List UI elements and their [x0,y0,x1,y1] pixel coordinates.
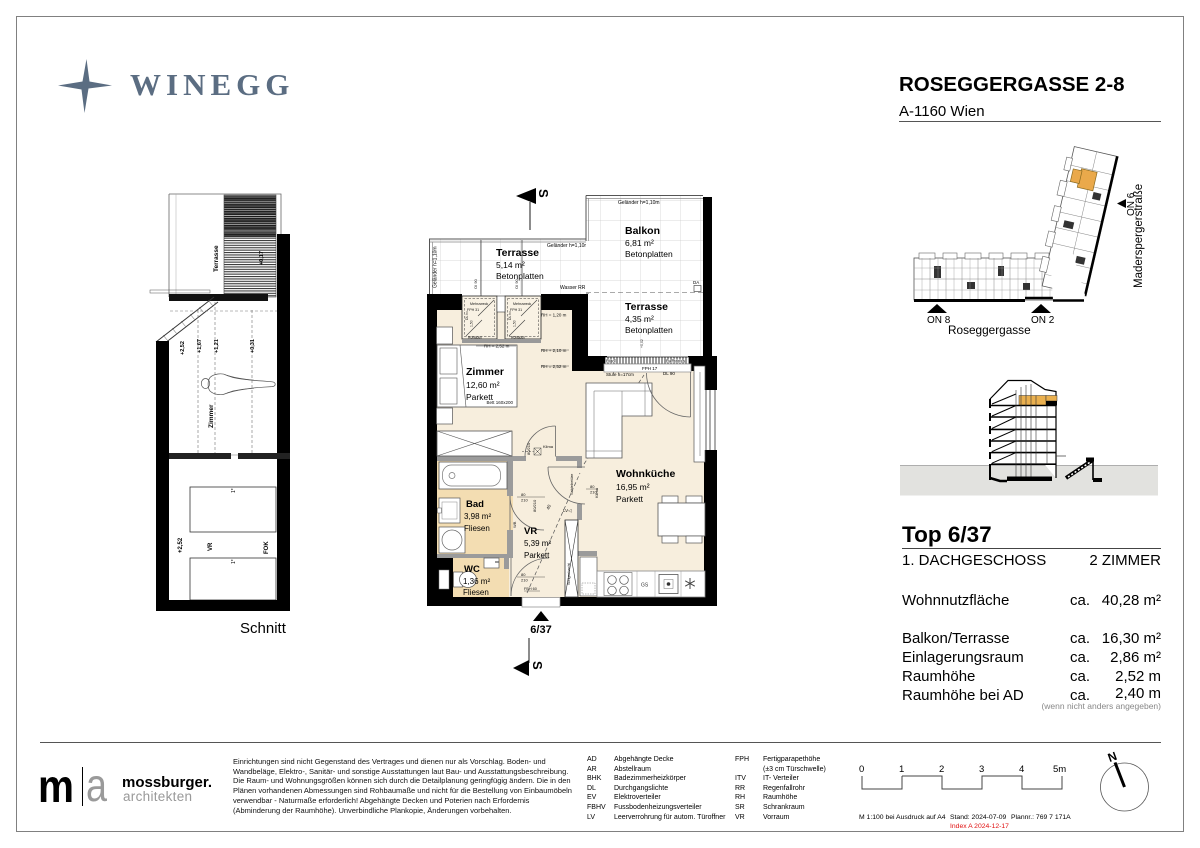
svg-text:Raffstores: Raffstores [666,359,685,364]
svg-text:Wohnküche: Wohnküche [616,468,675,480]
svg-text:Fliesen: Fliesen [464,524,490,533]
svg-text:S: S [536,189,551,198]
svg-text:RH = 1,20 m: RH = 1,20 m [541,313,567,318]
svg-text:+0,02: +0,02 [640,339,644,348]
svg-text:3,98 m²: 3,98 m² [464,512,491,521]
svg-text:Rollladen: Rollladen [511,336,525,340]
svg-text:Parkett: Parkett [616,494,644,504]
svg-text:Parkett: Parkett [524,551,550,560]
svg-text:ON 2: ON 2 [1031,315,1055,326]
svg-text:Stufe h=17cm: Stufe h=17cm [606,372,634,377]
svg-text:DA: DA [693,280,699,285]
svg-text:Betonplatten: Betonplatten [496,271,544,281]
svg-text:5,14 m²: 5,14 m² [496,260,525,270]
svg-text:16,95 m²: 16,95 m² [616,482,650,492]
svg-text:Geländer h=1,10m: Geländer h=1,10m [547,243,589,249]
svg-text:80: 80 [521,492,526,497]
svg-text:N: N [1106,750,1119,765]
svg-text:1,50: 1,50 [513,320,517,327]
svg-text:FBH 60: FBH 60 [524,587,537,591]
svg-text:4,35 m²: 4,35 m² [625,314,654,324]
svg-text:+0,17: +0,17 [259,251,265,265]
svg-text:Klima: Klima [543,444,554,449]
svg-text:1,50: 1,50 [470,320,474,327]
svg-text:5,39 m²: 5,39 m² [524,539,551,548]
svg-text:6/37: 6/37 [530,624,551,636]
svg-text:80: 80 [521,572,526,577]
svg-text:S: S [530,661,545,670]
svg-text:GS: GS [641,583,649,589]
svg-text:+2,52: +2,52 [178,537,184,553]
svg-text:OI 90: OI 90 [514,278,519,289]
svg-text:Terrasse: Terrasse [625,301,668,313]
svg-text:80/210: 80/210 [532,499,537,512]
svg-text:6,81 m²: 6,81 m² [625,238,654,248]
svg-text:5m: 5m [1053,764,1066,775]
svg-text:RH = 2,52 m: RH = 2,52 m [541,364,567,369]
svg-text:Bad: Bad [466,499,484,510]
svg-text:1: 1 [899,764,904,775]
svg-text:Mehrzweck: Mehrzweck [513,302,531,306]
svg-text:FOK: FOK [264,541,270,554]
svg-text:+1,67: +1,67 [197,339,203,353]
svg-text:Rigol: Rigol [606,359,616,364]
svg-text:210: 210 [521,498,528,503]
svg-text:Wasser RR: Wasser RR [560,285,586,291]
svg-text:Fliesen: Fliesen [463,588,489,597]
svg-text:DL h=: DL h= [508,311,512,320]
svg-text:2: 2 [939,764,944,775]
svg-text:1,36 m²: 1,36 m² [463,577,490,586]
svg-text:Betonplatten: Betonplatten [625,325,673,335]
svg-text:80/210: 80/210 [526,442,531,455]
svg-text:+1,21: +1,21 [214,339,220,353]
svg-text:Zimmer: Zimmer [208,404,215,428]
svg-text:Roseggergasse: Roseggergasse [948,323,1031,337]
svg-text:Klima: Klima [594,487,599,498]
svg-text:FPH 17: FPH 17 [642,366,658,371]
svg-text:Zimmer: Zimmer [466,366,504,378]
svg-text:WINEGG: WINEGG [130,67,294,102]
svg-text:Mehrzweck: Mehrzweck [470,302,488,306]
svg-text:Rollladen: Rollladen [468,336,482,340]
svg-text:Maderspergerstraße: Maderspergerstraße [1133,184,1145,288]
svg-text:WC: WC [464,564,480,575]
svg-text:1*: 1* [231,559,237,564]
svg-text:WB: WB [512,521,517,528]
svg-text:0: 0 [859,764,864,775]
svg-text:Parkett: Parkett [466,392,494,402]
svg-text:Geländer h=1,10m: Geländer h=1,10m [618,200,660,206]
svg-text:3: 3 [979,764,984,775]
svg-text:4: 4 [1019,764,1024,775]
svg-text:Betonplatten: Betonplatten [625,249,673,259]
svg-text:Terrasse: Terrasse [496,247,539,259]
svg-text:RH + 2,10 m: RH + 2,10 m [541,348,567,353]
svg-text:+2,52: +2,52 [180,341,186,355]
svg-text:VR: VR [524,526,537,537]
svg-text:VR: VR [208,542,214,551]
svg-text:12,60 m²: 12,60 m² [466,380,500,390]
svg-text:Terrasse: Terrasse [213,245,220,272]
svg-text:DL 90: DL 90 [663,371,675,376]
svg-text:OI 90: OI 90 [473,278,478,289]
svg-text:Balkon: Balkon [625,225,660,237]
svg-text:Steigschacht: Steigschacht [567,562,571,585]
svg-text:1*: 1* [231,488,237,493]
svg-text:210: 210 [521,578,528,583]
svg-text:Geländer h=1,10m: Geländer h=1,10m [433,246,439,288]
svg-text:LV◁: LV◁ [563,508,572,513]
svg-text:+0,31: +0,31 [250,339,256,353]
svg-text:DL h=: DL h= [465,311,469,320]
